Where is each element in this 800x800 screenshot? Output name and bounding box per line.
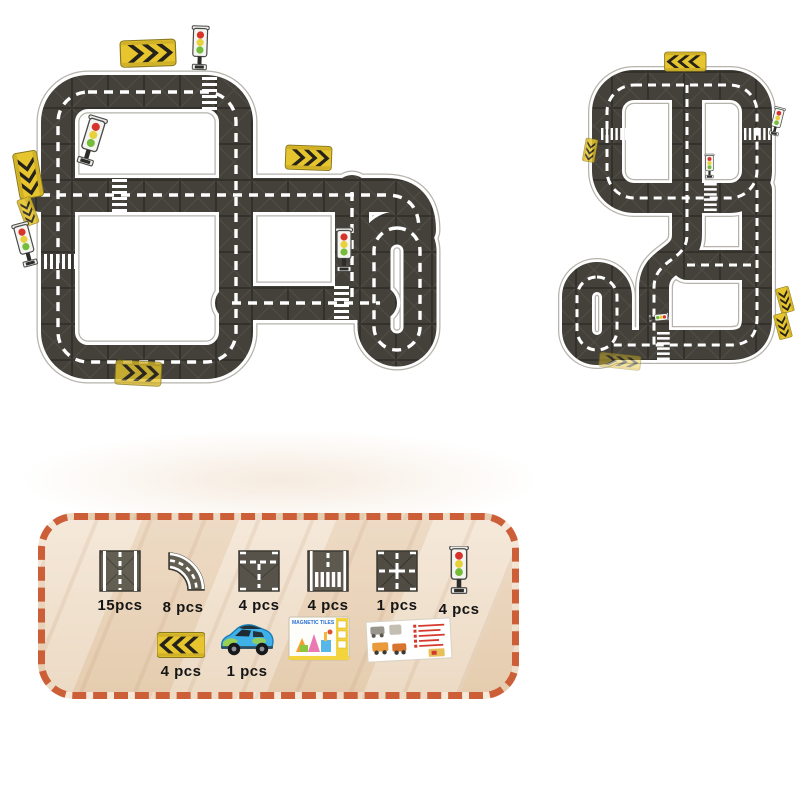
- t-junction-tile-icon: [238, 550, 280, 592]
- part-item: [369, 619, 449, 663]
- part-item: 4 pcs: [288, 550, 368, 614]
- part-item: 8 pcs: [143, 550, 223, 616]
- part-count: 4 pcs: [161, 663, 202, 680]
- part-count: 4 pcs: [239, 597, 280, 614]
- track-layout-right: [577, 52, 795, 371]
- cross-junction-tile-icon: [376, 550, 418, 592]
- parts-panel: 15pcs 8 pcs 4 pcs: [38, 513, 519, 699]
- instruction-sheet-icon: [365, 617, 453, 665]
- part-item: 1 pcs: [207, 620, 287, 680]
- part-count: 1 pcs: [377, 597, 418, 614]
- chevron-sign-icon: [157, 632, 205, 658]
- product-photo: 15pcs 8 pcs 4 pcs: [0, 0, 800, 800]
- curved-road-tile-icon: [161, 550, 205, 594]
- assembled-track-image: [0, 0, 800, 505]
- box-title: MAGNETIC TILES: [292, 620, 335, 626]
- part-count: 4 pcs: [439, 601, 480, 618]
- toy-car-icon: [218, 620, 276, 658]
- part-item: 4 pcs: [419, 546, 499, 618]
- track-layout-left: [11, 26, 420, 387]
- part-count: 8 pcs: [163, 599, 204, 616]
- part-count: 15pcs: [97, 597, 142, 614]
- crosswalk-tile-icon: [307, 550, 349, 592]
- traffic-light-icon: [447, 546, 471, 596]
- part-count: 1 pcs: [227, 663, 268, 680]
- product-box-icon: MAGNETIC TILES: [288, 612, 350, 664]
- part-item: 4 pcs: [219, 550, 299, 614]
- part-item: MAGNETIC TILES: [279, 612, 359, 664]
- straight-road-tile-icon: [99, 550, 141, 592]
